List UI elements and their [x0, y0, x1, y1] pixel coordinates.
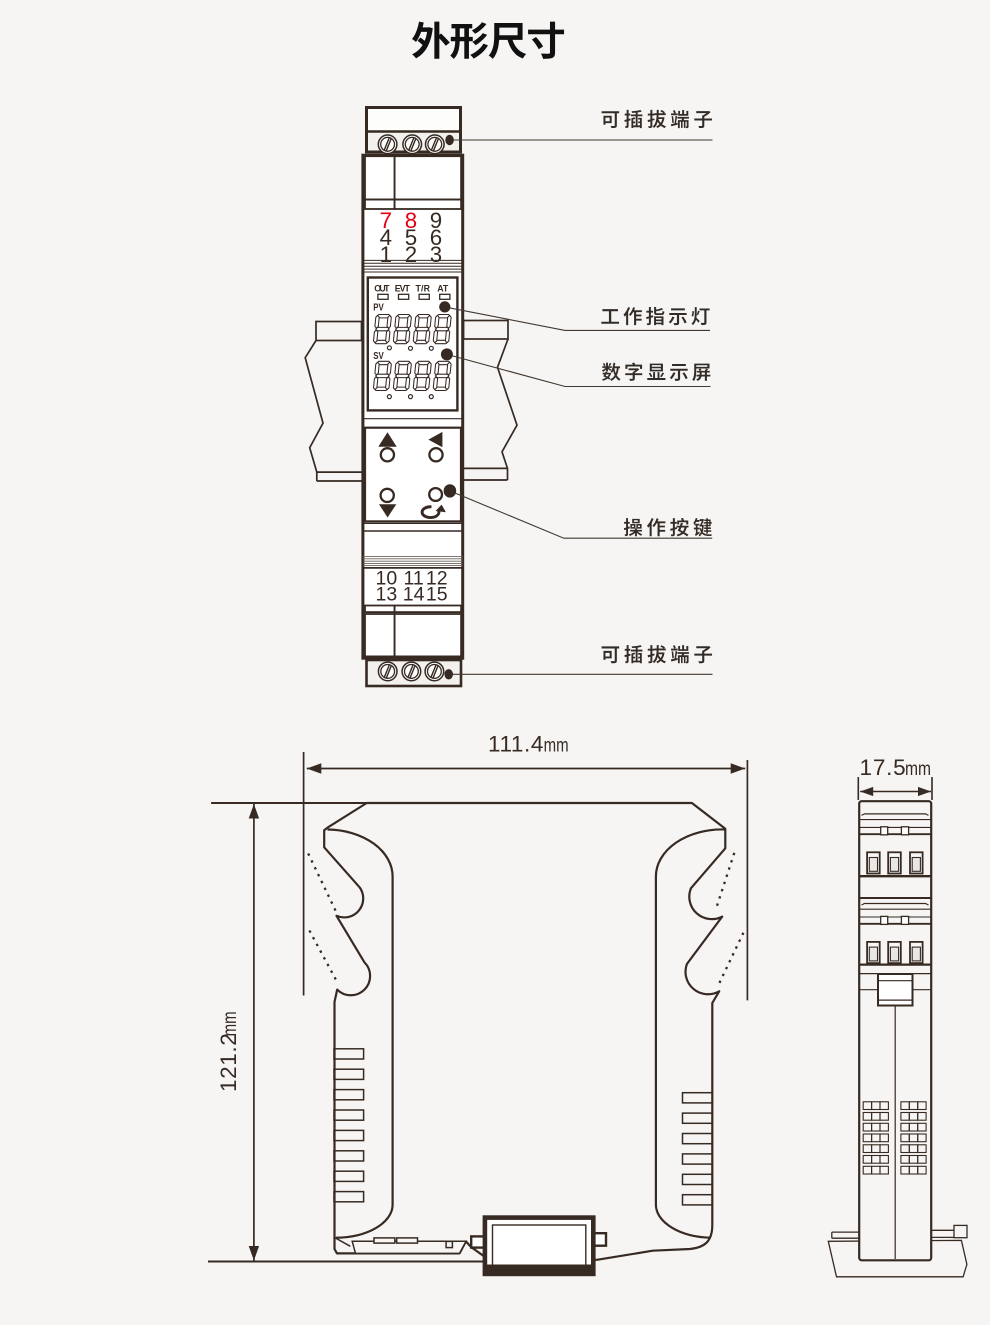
svg-text:111.4: 111.4 — [488, 732, 544, 757]
svg-text:13: 13 — [376, 584, 398, 606]
svg-text:OUT: OUT — [374, 283, 390, 293]
svg-text:SV: SV — [373, 351, 384, 362]
svg-text:PV: PV — [373, 303, 384, 314]
svg-text:121.2: 121.2 — [216, 1033, 241, 1092]
svg-text:14: 14 — [403, 584, 425, 606]
svg-text:mm: mm — [544, 736, 569, 757]
svg-text:mm: mm — [220, 1011, 241, 1036]
svg-text:T/R: T/R — [416, 283, 431, 293]
svg-text:15: 15 — [426, 584, 448, 606]
svg-text:AT: AT — [437, 283, 449, 293]
svg-text:EVT: EVT — [395, 283, 411, 293]
svg-text:mm: mm — [905, 759, 931, 780]
svg-text:17.5: 17.5 — [860, 755, 907, 780]
